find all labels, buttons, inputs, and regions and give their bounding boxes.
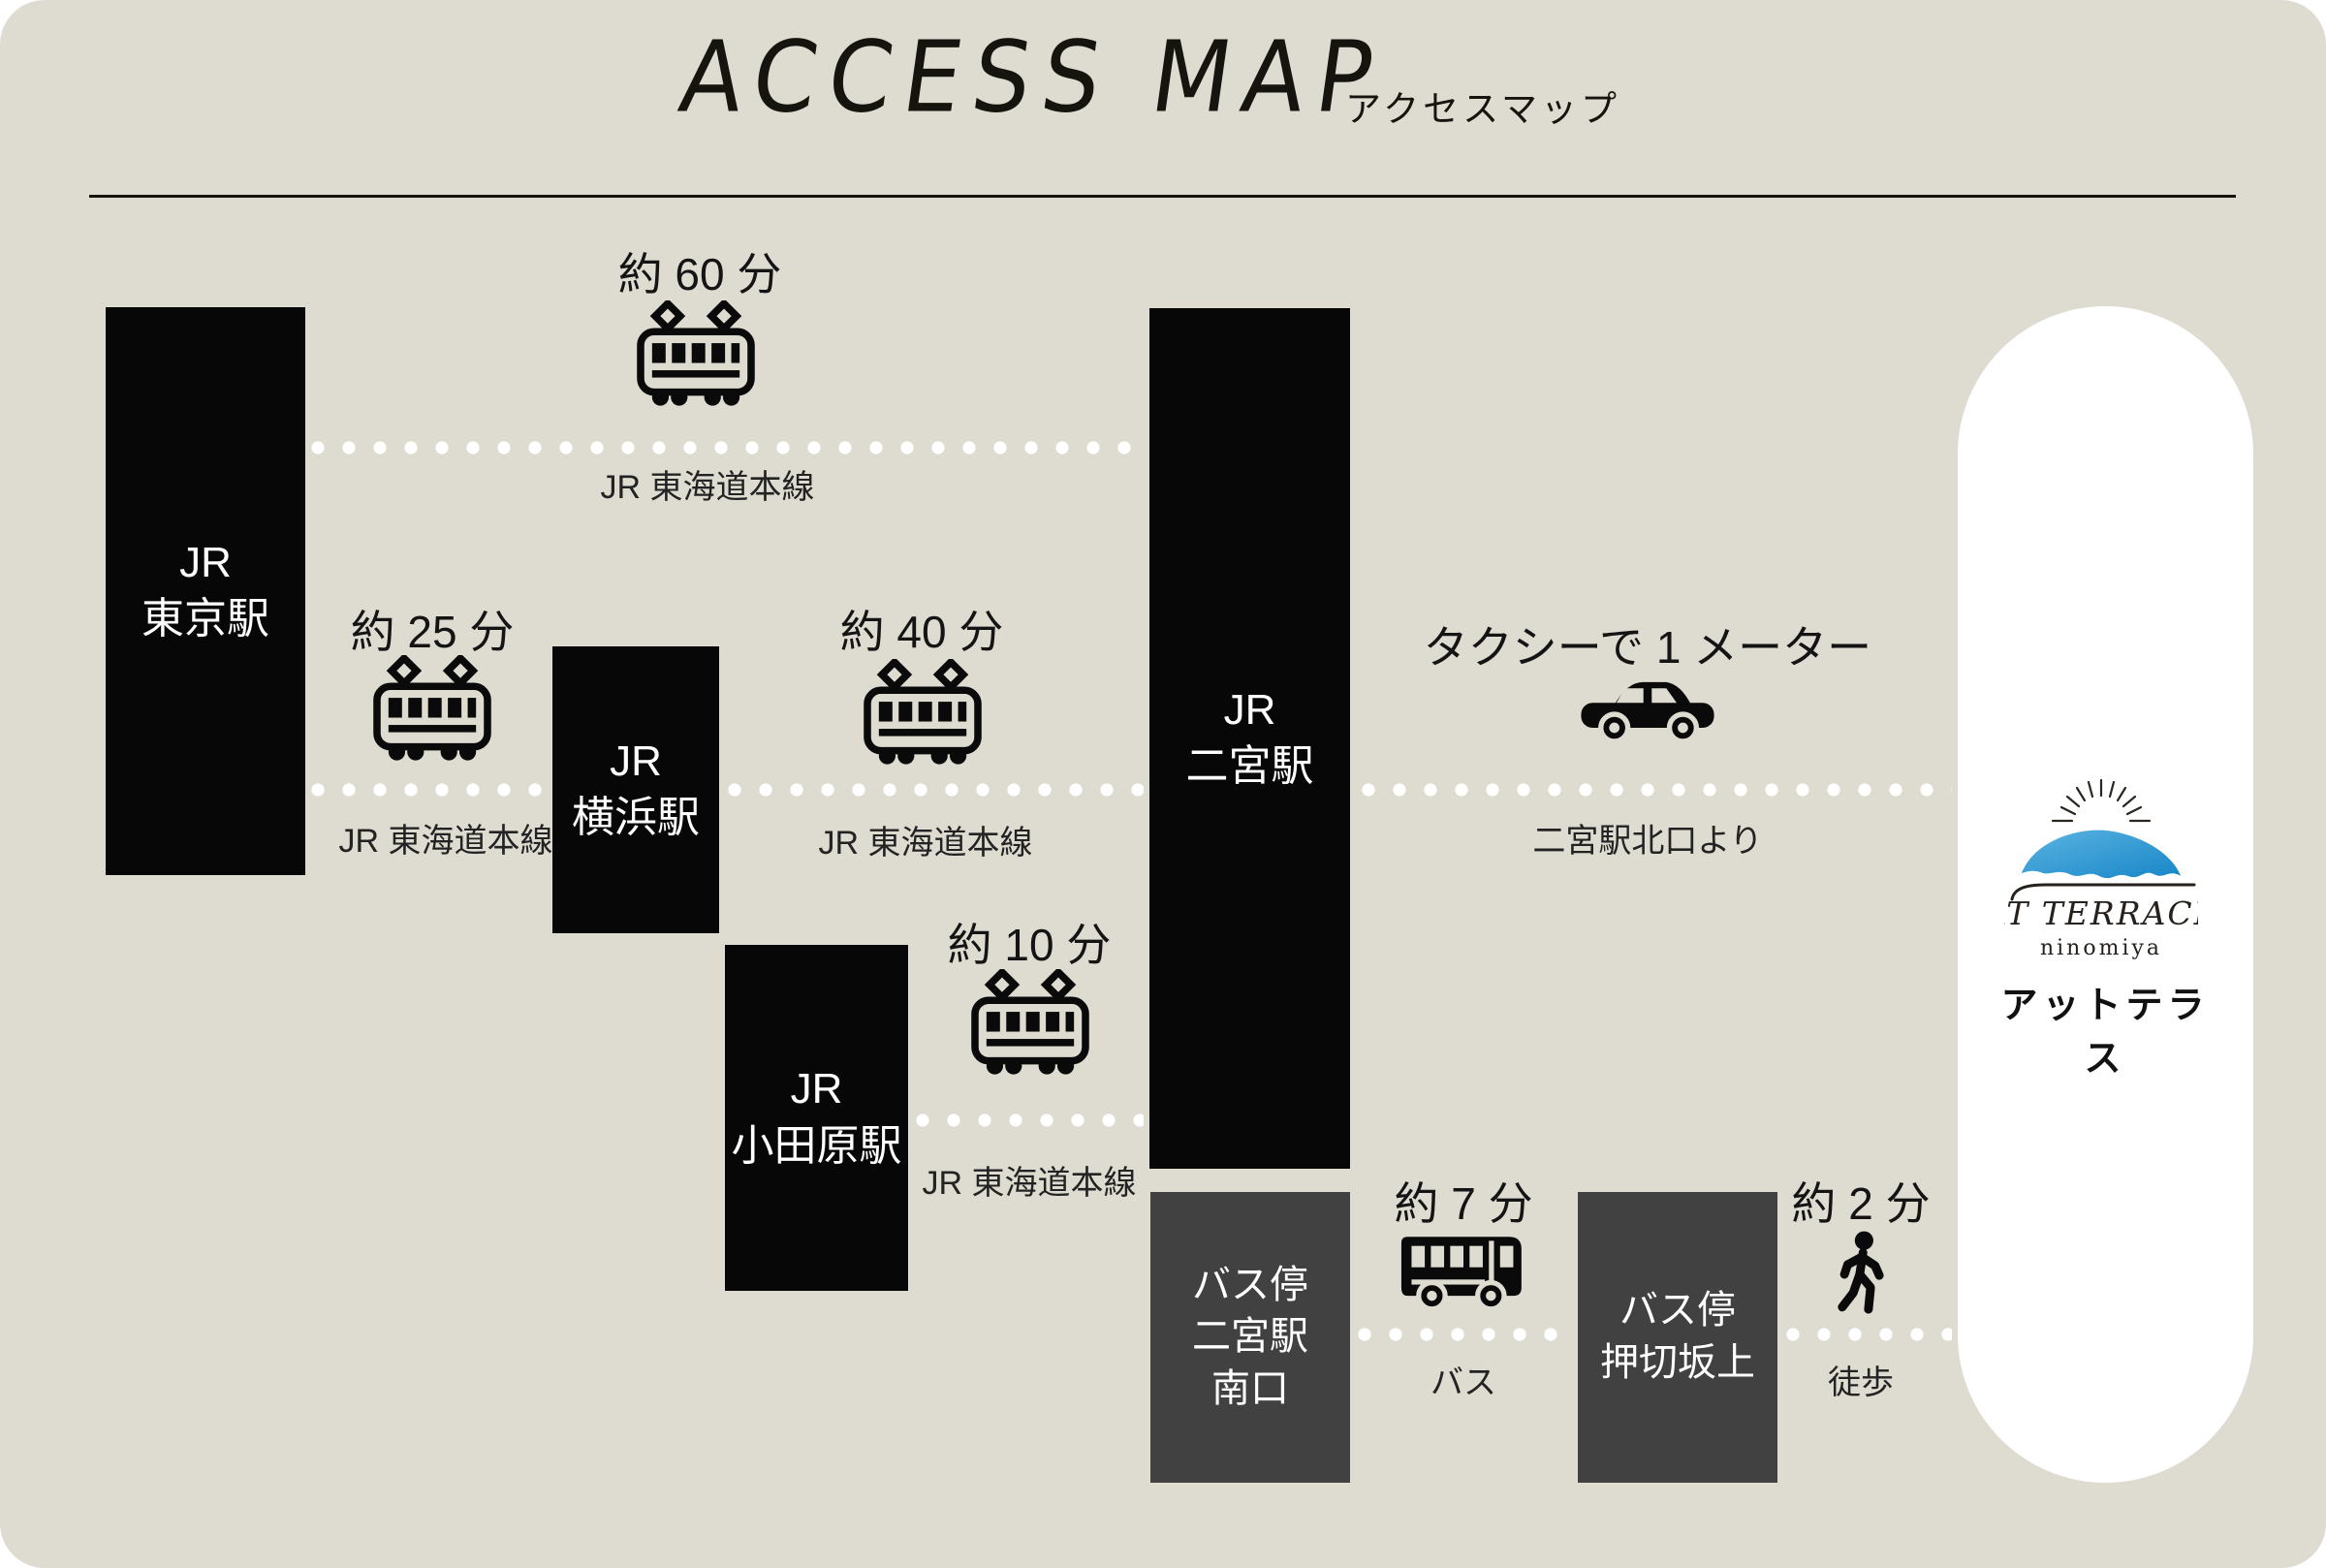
access-map: ACCESS MAP アクセスマップ JR 東京駅 JR 横浜駅 JR 小田原駅…: [0, 0, 2326, 1568]
destination-name-sub: ninomiya: [2004, 936, 2198, 960]
destination-name-jp: アットテラス: [1998, 975, 2212, 1082]
route-line-label: 二宮駅北口より: [1357, 820, 1938, 862]
route-dotted-line-taxi: [1359, 782, 1952, 798]
destination-name-en: AT TERRACE: [2004, 894, 2198, 932]
train-icon: [857, 659, 989, 769]
station-yokohama: JR 横浜駅: [552, 646, 719, 933]
car-icon: [1575, 671, 1720, 756]
route-dotted-line-walk: [1783, 1327, 1952, 1342]
station-label-line: JR: [610, 734, 662, 790]
station-ninomiya: JR 二宮駅: [1149, 308, 1350, 1169]
route-dotted-line-bus: [1355, 1327, 1572, 1342]
station-label-line: 二宮駅: [1186, 738, 1314, 795]
bus-stop-oshikirizakaue: バス停 押切坂上: [1578, 1192, 1777, 1483]
walk-icon: [1835, 1231, 1887, 1318]
station-tokyo: JR 東京駅: [106, 307, 305, 875]
bus-stop-label-line: 二宮駅: [1192, 1311, 1308, 1364]
train-icon: [366, 655, 498, 766]
route-dotted-line-tokyo-ninomiya: [308, 440, 1144, 455]
route-dotted-line-odawara-ninomiya: [913, 1113, 1144, 1128]
station-label-line: JR: [179, 535, 232, 591]
header-divider: [89, 195, 2236, 198]
destination-logo-en: AT TERRACE: [2004, 874, 2198, 938]
bus-stop-label-line: バス停: [1192, 1260, 1308, 1312]
route-line-label: JR 東海道本線: [417, 466, 998, 509]
station-label-line: JR: [791, 1061, 843, 1117]
route-dotted-line-yokohama-ninomiya: [725, 782, 1144, 798]
route-time-label: 約 10 分: [739, 916, 1320, 974]
route-time-label: タクシーで 1 メーター: [1357, 618, 1938, 676]
station-label-line: JR: [1224, 682, 1276, 738]
train-icon: [964, 969, 1096, 1080]
route-time-label: 約 60 分: [409, 245, 990, 303]
page-subtitle: アクセスマップ: [1345, 79, 1620, 132]
route-dotted-line-tokyo-yokohama: [308, 782, 547, 798]
sun-icon: [2051, 778, 2152, 832]
train-icon: [630, 300, 762, 411]
bus-icon: [1396, 1233, 1531, 1314]
bus-stop-label-line: バス停: [1619, 1285, 1736, 1337]
route-time-label: 約 40 分: [631, 603, 1212, 661]
bus-stop-ninomiya-south: バス停 二宮駅 南口: [1150, 1192, 1350, 1483]
station-odawara: JR 小田原駅: [725, 945, 908, 1291]
route-line-label: JR 東海道本線: [635, 822, 1216, 864]
